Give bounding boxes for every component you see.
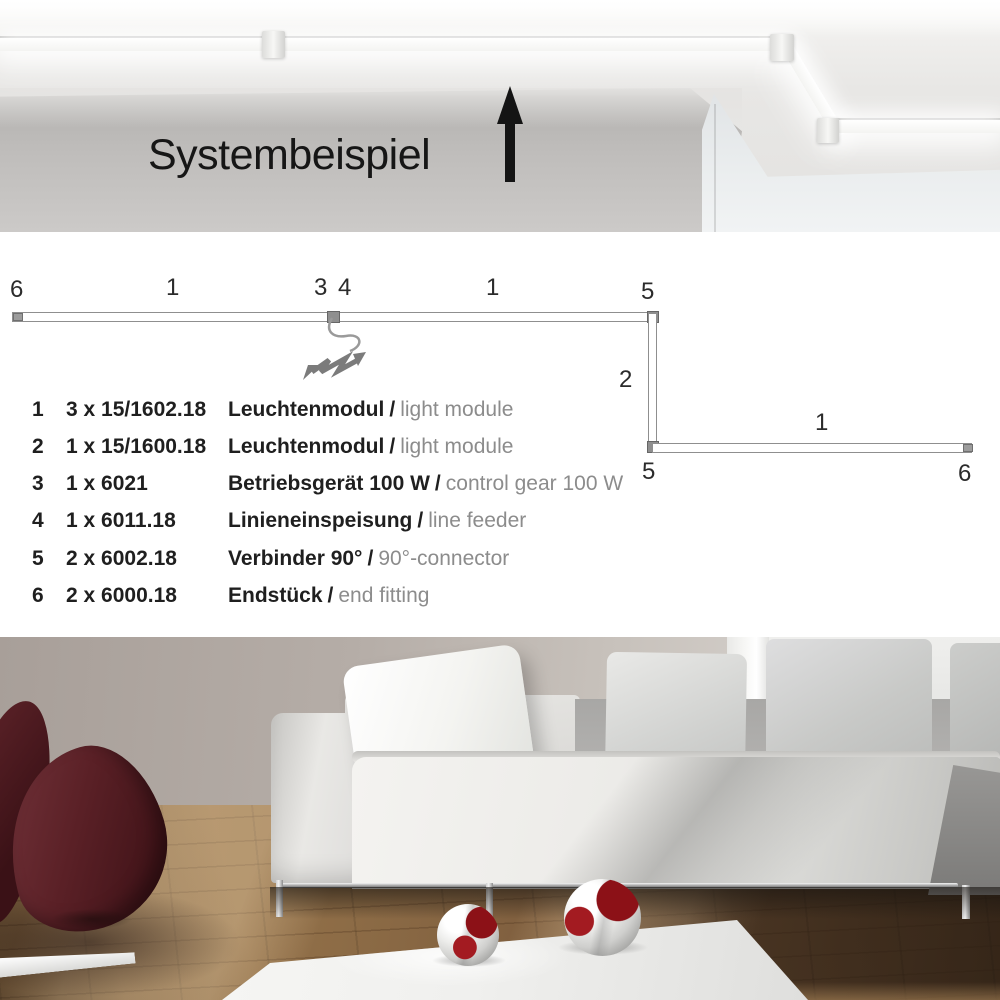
page-title: Systembeispiel bbox=[148, 131, 430, 180]
system-diagram-panel: 6 1 3 4 1 5 2 5 1 6 1 3 x 15/1602.18 Leu… bbox=[0, 232, 1000, 637]
part-position: 6 bbox=[32, 584, 44, 608]
power-feed-wire bbox=[298, 310, 408, 390]
led-track-connector-2 bbox=[817, 118, 839, 143]
product-image: Systembeispiel 6 1 3 4 1 5 2 5 1 6 bbox=[0, 0, 1000, 1000]
separator: / bbox=[389, 398, 395, 421]
part-name-german: Endstück bbox=[228, 584, 323, 607]
part-name-english: control gear 100 W bbox=[446, 472, 623, 495]
part-name-english: light module bbox=[400, 435, 513, 458]
up-arrow-icon bbox=[497, 86, 523, 124]
part-name-german: Leuchtenmodul bbox=[228, 435, 384, 458]
part-name-german: Betriebsgerät 100 W bbox=[228, 472, 430, 495]
diagram-marker: 6 bbox=[10, 276, 23, 304]
parts-list-row: 6 2 x 6000.18 Endstück/end fitting bbox=[0, 584, 1000, 612]
up-arrow-shaft bbox=[505, 122, 515, 182]
part-name-german: Leuchtenmodul bbox=[228, 398, 384, 421]
end-fitting-left bbox=[13, 313, 23, 321]
separator: / bbox=[328, 584, 334, 607]
part-name-english: 90°-connector bbox=[378, 547, 509, 570]
part-position: 1 bbox=[32, 398, 44, 422]
part-name-english: end fitting bbox=[338, 584, 429, 607]
wall-corner-edge bbox=[714, 104, 716, 232]
part-description: Betriebsgerät 100 W/control gear 100 W bbox=[228, 472, 623, 496]
parts-list-row: 2 1 x 15/1600.18 Leuchtenmodul/light mod… bbox=[0, 435, 1000, 463]
chair-base-shadow bbox=[52, 909, 132, 929]
decor-ball-1 bbox=[437, 904, 499, 966]
separator: / bbox=[417, 509, 423, 532]
lightning-bolt-icon bbox=[303, 352, 366, 380]
parts-list-row: 1 3 x 15/1602.18 Leuchtenmodul/light mod… bbox=[0, 398, 1000, 426]
parts-list-row: 3 1 x 6021 Betriebsgerät 100 W/control g… bbox=[0, 472, 1000, 500]
part-quantity: 3 x 15/1602.18 bbox=[66, 398, 206, 422]
part-name-german: Verbinder 90° bbox=[228, 547, 362, 570]
part-description: Endstück/end fitting bbox=[228, 584, 429, 608]
ceiling-glow bbox=[0, 0, 1000, 36]
part-quantity: 2 x 6000.18 bbox=[66, 584, 177, 608]
separator: / bbox=[389, 435, 395, 458]
part-description: Linieneinspeisung/line feeder bbox=[228, 509, 526, 533]
part-quantity: 1 x 6021 bbox=[66, 472, 148, 496]
parts-list-row: 5 2 x 6002.18 Verbinder 90°/90°-connecto… bbox=[0, 547, 1000, 575]
part-position: 4 bbox=[32, 509, 44, 533]
wall-shadow-edge bbox=[0, 88, 742, 128]
part-description: Leuchtenmodul/light module bbox=[228, 435, 513, 459]
decor-ball-2 bbox=[564, 879, 641, 956]
part-name-english: light module bbox=[400, 398, 513, 421]
diagram-marker: 1 bbox=[166, 274, 179, 302]
diagram-marker: 1 bbox=[486, 274, 499, 302]
part-quantity: 1 x 6011.18 bbox=[66, 509, 176, 533]
part-description: Leuchtenmodul/light module bbox=[228, 398, 513, 422]
part-name-english: line feeder bbox=[428, 509, 526, 532]
part-position: 2 bbox=[32, 435, 44, 459]
part-quantity: 2 x 6002.18 bbox=[66, 547, 177, 571]
diagram-marker: 5 bbox=[641, 278, 654, 306]
parts-list-row: 4 1 x 6011.18 Linieneinspeisung/line fee… bbox=[0, 509, 1000, 537]
part-quantity: 1 x 15/1600.18 bbox=[66, 435, 206, 459]
part-description: Verbinder 90°/90°-connector bbox=[228, 547, 509, 571]
separator: / bbox=[435, 472, 441, 495]
led-strip-horizontal-1 bbox=[0, 38, 788, 51]
led-strip-horizontal-2 bbox=[836, 120, 1000, 133]
part-position: 5 bbox=[32, 547, 44, 571]
track-segment-vertical bbox=[648, 313, 657, 453]
corner-wall-white bbox=[702, 94, 1000, 232]
part-position: 3 bbox=[32, 472, 44, 496]
ceiling-photo: Systembeispiel bbox=[0, 0, 1000, 234]
led-track-connector bbox=[262, 31, 285, 58]
living-room-photo bbox=[0, 637, 1000, 1000]
diagram-marker: 3 bbox=[314, 274, 327, 302]
sofa-seat bbox=[352, 757, 1000, 889]
part-name-german: Linieneinspeisung bbox=[228, 509, 412, 532]
led-track-corner-connector bbox=[770, 34, 794, 61]
diagram-marker: 2 bbox=[619, 366, 632, 394]
sofa-armrest bbox=[271, 713, 364, 883]
separator: / bbox=[367, 547, 373, 570]
diagram-marker: 4 bbox=[338, 274, 351, 302]
